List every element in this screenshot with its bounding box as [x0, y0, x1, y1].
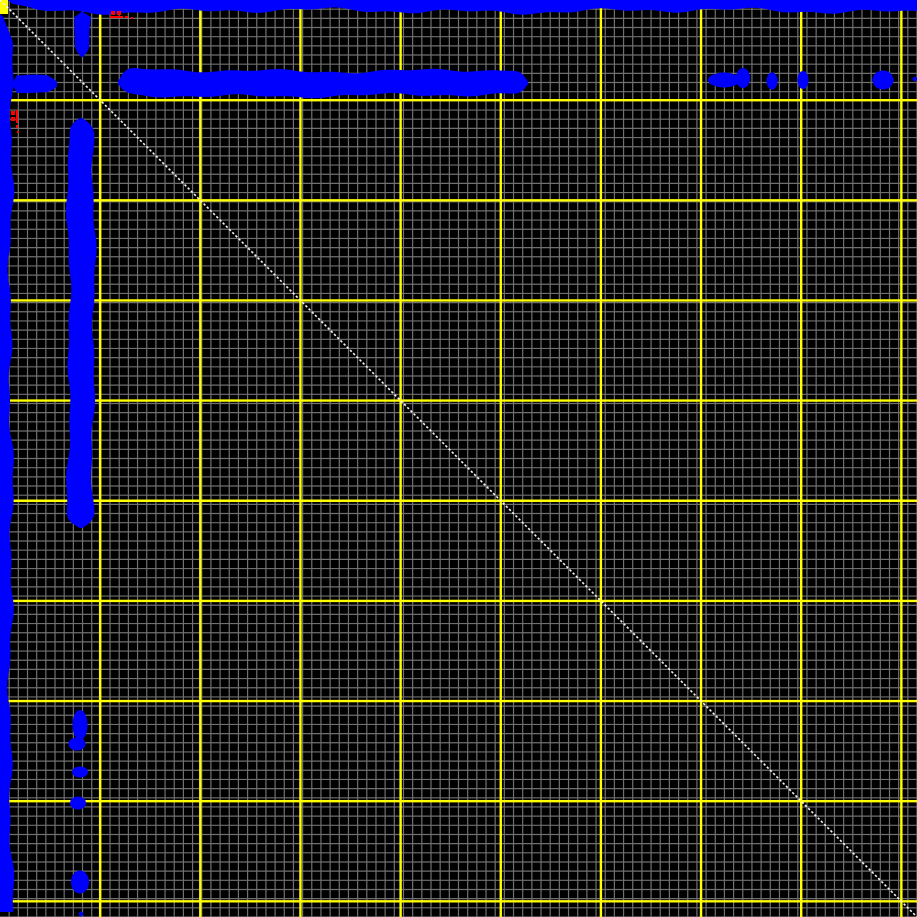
left-arm-band: [12, 75, 57, 93]
match-blob-1: [736, 68, 750, 88]
match-blob-6: [73, 710, 88, 740]
dotplot-viewport: [0, 0, 917, 917]
match-blob-3: [798, 71, 809, 89]
match-blob-11: [79, 912, 83, 917]
match-blob-9: [70, 797, 86, 810]
annotation-mark-9: [17, 131, 19, 133]
annotation-mark-7: [16, 110, 18, 123]
match-blob-8: [72, 767, 88, 778]
annotation-mark-0: [111, 11, 115, 15]
match-blob-0: [708, 73, 740, 88]
annotation-mark-5: [11, 111, 15, 115]
annotation-mark-1: [117, 11, 121, 15]
match-blob-4: [873, 71, 894, 90]
annotation-mark-6: [11, 117, 15, 121]
annotation-mark-4: [131, 17, 133, 19]
horizontal-repeat-band: [118, 68, 528, 98]
match-blob-7: [69, 738, 86, 751]
dotplot-canvas[interactable]: [0, 0, 917, 917]
match-blob-10: [71, 871, 89, 894]
annotation-mark-3: [125, 16, 128, 18]
annotation-mark-2: [110, 16, 123, 18]
annotation-mark-8: [16, 125, 18, 128]
match-blob-2: [767, 73, 778, 90]
